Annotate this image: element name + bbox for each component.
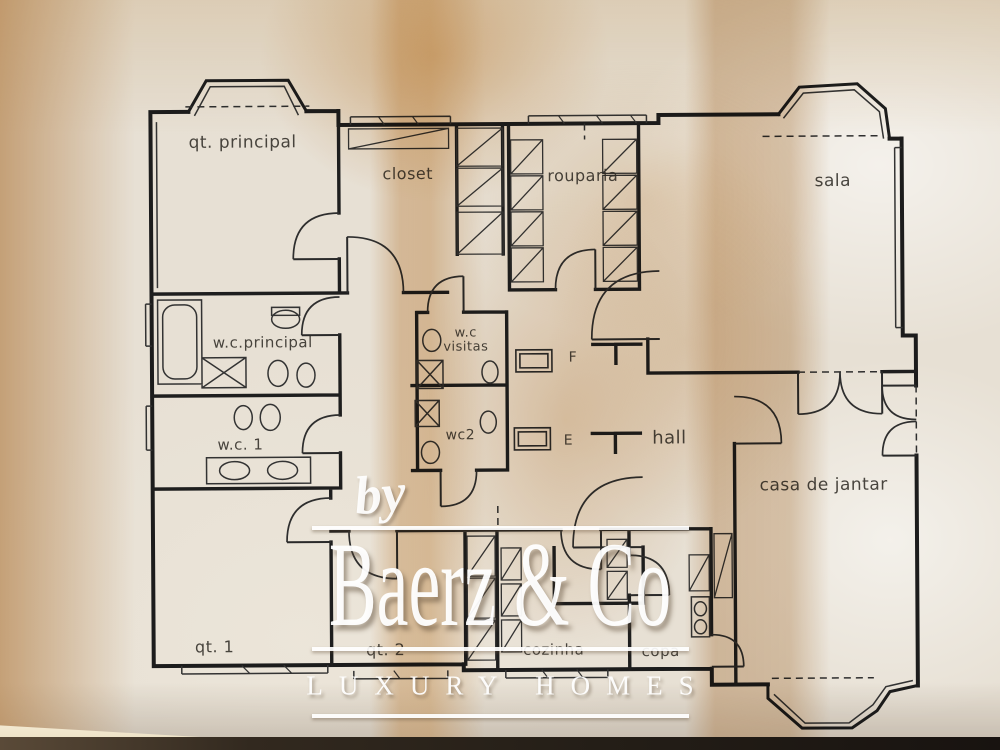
kitchen-sink-icon	[694, 620, 706, 634]
room-label-closet: closet	[382, 164, 433, 183]
bidet-icon	[234, 406, 252, 430]
room-label-wc-principal: w.c.principal	[213, 333, 313, 352]
room-label-cozinha: cozinha	[523, 640, 584, 658]
sink-icon	[272, 310, 300, 328]
dashed-openings	[185, 102, 917, 681]
floor-plan: qt. principalclosetroupariasalaw.c.princ…	[0, 0, 1000, 750]
room-label-hall: hall	[652, 427, 687, 448]
kitchen-sink-icon	[694, 602, 706, 616]
sink-icon	[220, 462, 250, 480]
room-label-qt-1: qt. 1	[195, 637, 234, 656]
outer-walls	[150, 107, 918, 690]
toilet-icon	[260, 404, 280, 430]
room-label-qt-2: qt. 2	[366, 640, 405, 659]
room-label-marker-f: F	[569, 350, 578, 366]
shaft-markers	[514, 350, 553, 450]
floor-plan-drawing	[0, 0, 1000, 750]
room-label-wc-2: wc2	[446, 427, 476, 443]
room-label-sala: sala	[815, 171, 852, 191]
room-label-wc-visitas: w.c visitas	[439, 326, 493, 354]
floor-plan-photo: qt. principalclosetroupariasalaw.c.princ…	[0, 0, 1000, 750]
bathtub-icon	[163, 305, 197, 379]
photo-bottom-edge	[0, 737, 1000, 750]
interior-walls	[150, 121, 917, 688]
room-label-marker-e: E	[564, 433, 573, 449]
room-label-casa-de-jantar: casa de jantar	[760, 475, 888, 496]
sink-icon	[268, 461, 298, 479]
bidet-icon	[297, 363, 315, 387]
sink-icon	[482, 361, 498, 383]
sink-icon	[480, 411, 496, 433]
room-label-copa: copa	[642, 642, 680, 660]
room-label-wc-1: w.c. 1	[217, 435, 263, 453]
room-label-rouparia: rouparia	[547, 166, 618, 185]
wardrobe-cabinets	[348, 127, 732, 661]
door-arcs	[285, 209, 918, 669]
room-label-qt-principal: qt. principal	[188, 132, 296, 153]
toilet-icon	[421, 441, 439, 463]
toilet-icon	[268, 360, 288, 386]
